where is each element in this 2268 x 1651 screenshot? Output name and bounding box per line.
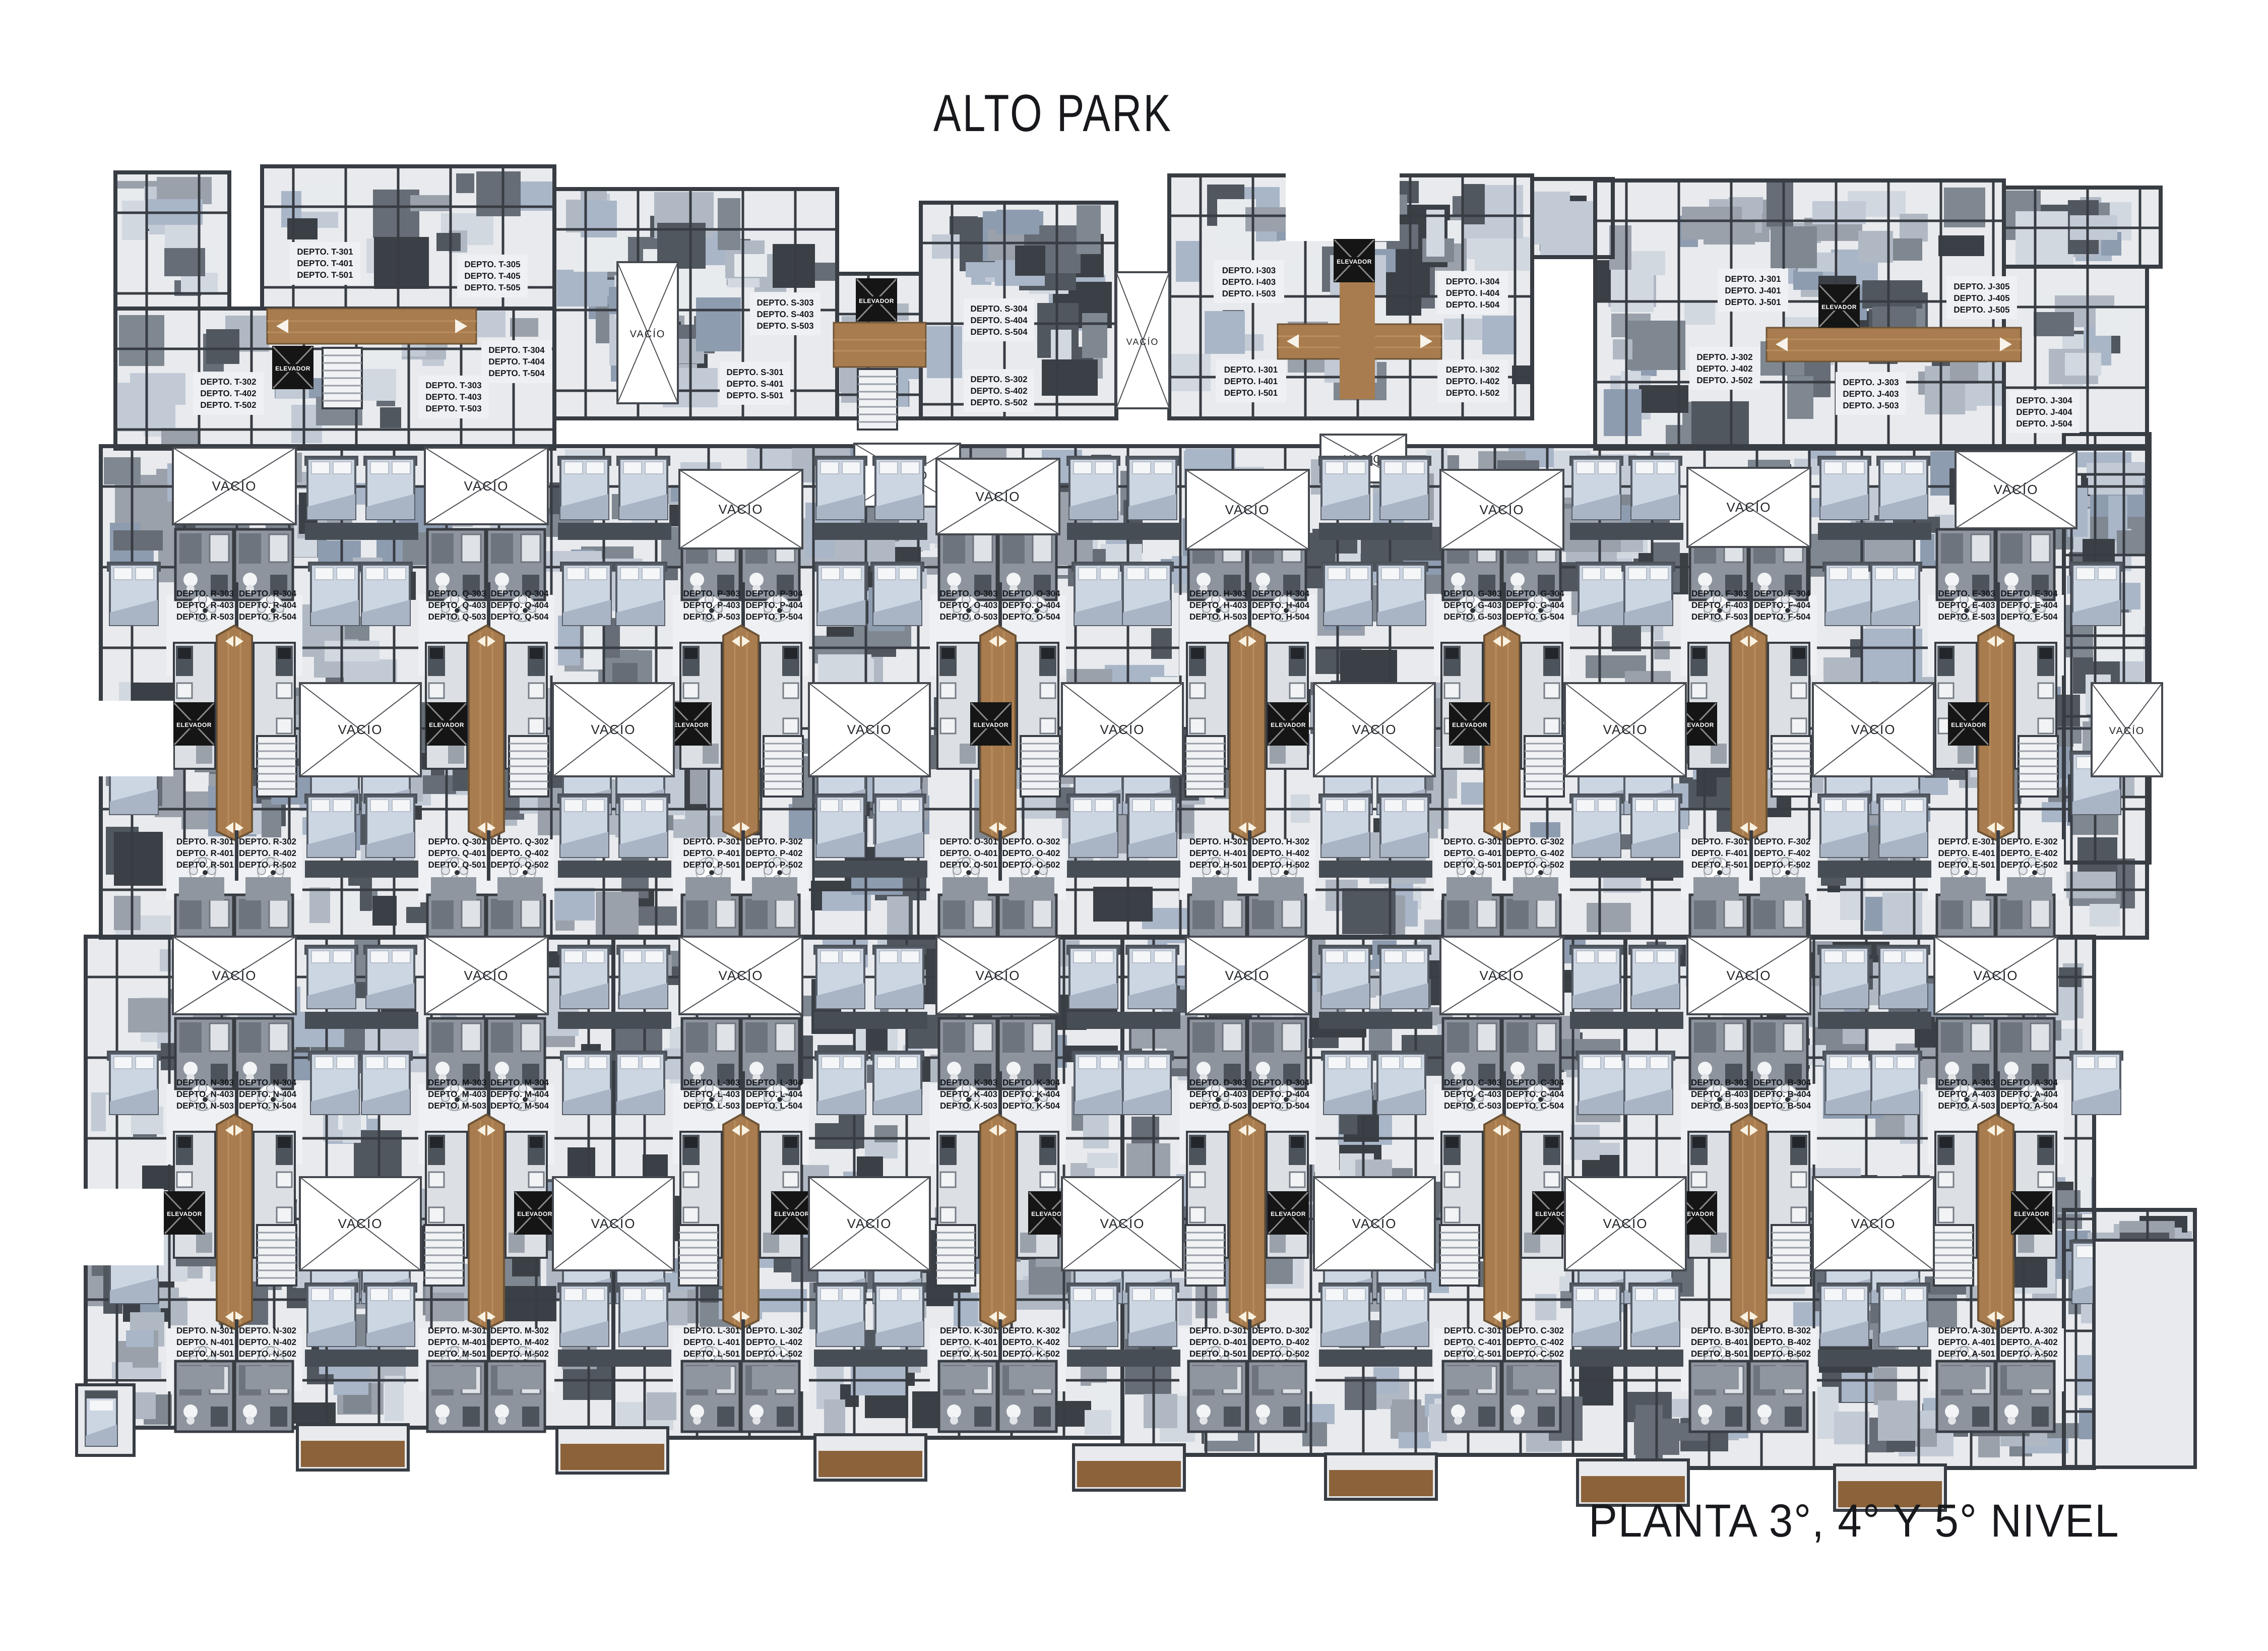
svg-text:VACÍO: VACÍO [1974,968,2019,983]
svg-text:VACÍO: VACÍO [2109,725,2145,737]
svg-text:VACÍO: VACÍO [976,489,1021,504]
svg-text:DEPTO. F-303DEPTO. F-403DEPTO.: DEPTO. F-303DEPTO. F-403DEPTO. F-503 [1691,589,1748,622]
svg-text:VACÍO: VACÍO [1727,500,1772,515]
svg-text:DEPTO. E-304DEPTO. E-404DEPTO.: DEPTO. E-304DEPTO. E-404DEPTO. E-504 [2000,589,2058,622]
svg-text:DEPTO. J-301DEPTO. J-401DEPTO.: DEPTO. J-301DEPTO. J-401DEPTO. J-501 [1725,274,1781,307]
svg-text:DEPTO. B-302DEPTO. B-402DEPTO.: DEPTO. B-302DEPTO. B-402DEPTO. B-502 [1753,1326,1811,1359]
svg-text:DEPTO. G-302DEPTO. G-402DEPTO.: DEPTO. G-302DEPTO. G-402DEPTO. G-502 [1506,837,1564,870]
svg-text:VACÍO: VACÍO [1603,722,1648,737]
svg-text:DEPTO. B-304DEPTO. B-404DEPTO.: DEPTO. B-304DEPTO. B-404DEPTO. B-504 [1753,1078,1811,1111]
svg-text:DEPTO. D-303DEPTO. D-403DEPTO.: DEPTO. D-303DEPTO. D-403DEPTO. D-503 [1189,1078,1247,1111]
svg-text:VACÍO: VACÍO [1126,337,1159,347]
svg-text:DEPTO. K-301DEPTO. K-401DEPTO.: DEPTO. K-301DEPTO. K-401DEPTO. K-501 [940,1326,997,1359]
svg-text:DEPTO. T-305DEPTO. T-405DEPTO.: DEPTO. T-305DEPTO. T-405DEPTO. T-505 [464,260,520,292]
svg-text:DEPTO. A-302DEPTO. A-402DEPTO.: DEPTO. A-302DEPTO. A-402DEPTO. A-502 [2000,1326,2057,1359]
svg-text:DEPTO. J-303DEPTO. J-403DEPTO.: DEPTO. J-303DEPTO. J-403DEPTO. J-503 [1843,378,1899,410]
svg-text:VACÍO: VACÍO [630,328,666,340]
svg-text:DEPTO. R-301DEPTO. R-401DEPTO.: DEPTO. R-301DEPTO. R-401DEPTO. R-501 [176,837,234,870]
svg-text:VACÍO: VACÍO [464,968,509,983]
svg-text:DEPTO. C-304DEPTO. C-404DEPTO.: DEPTO. C-304DEPTO. C-404DEPTO. C-504 [1506,1078,1564,1111]
svg-text:DEPTO. K-303DEPTO. K-403DEPTO.: DEPTO. K-303DEPTO. K-403DEPTO. K-503 [940,1078,997,1111]
svg-text:VACÍO: VACÍO [1994,482,2039,497]
svg-text:PLANTA 3°, 4° Y 5° NIVEL: PLANTA 3°, 4° Y 5° NIVEL [1589,1495,2119,1547]
svg-text:DEPTO. E-303DEPTO. E-403DEPTO.: DEPTO. E-303DEPTO. E-403DEPTO. E-503 [1938,589,1995,622]
svg-text:DEPTO. M-304DEPTO. M-404DEPTO.: DEPTO. M-304DEPTO. M-404DEPTO. M-504 [490,1078,549,1111]
svg-text:VACÍO: VACÍO [212,968,257,983]
svg-text:DEPTO. T-301DEPTO. T-401DEPTO.: DEPTO. T-301DEPTO. T-401DEPTO. T-501 [297,247,353,280]
svg-text:DEPTO. H-303DEPTO. H-403DEPTO.: DEPTO. H-303DEPTO. H-403DEPTO. H-503 [1189,589,1247,622]
svg-text:DEPTO. H-302DEPTO. H-402DEPTO.: DEPTO. H-302DEPTO. H-402DEPTO. H-502 [1252,837,1309,870]
svg-text:DEPTO. O-304DEPTO. O-404DEPTO.: DEPTO. O-304DEPTO. O-404DEPTO. O-504 [1002,589,1060,622]
svg-text:VACÍO: VACÍO [1100,722,1145,737]
svg-text:DEPTO. P-301DEPTO. P-401DEPTO.: DEPTO. P-301DEPTO. P-401DEPTO. P-501 [683,837,740,870]
svg-text:DEPTO. C-301DEPTO. C-401DEPTO.: DEPTO. C-301DEPTO. C-401DEPTO. C-501 [1444,1326,1501,1359]
svg-text:DEPTO. D-301DEPTO. D-401DEPTO.: DEPTO. D-301DEPTO. D-401DEPTO. D-501 [1189,1326,1247,1359]
svg-text:DEPTO. C-303DEPTO. C-403DEPTO.: DEPTO. C-303DEPTO. C-403DEPTO. C-503 [1444,1078,1501,1111]
svg-text:DEPTO. L-304DEPTO. L-404DEPTO.: DEPTO. L-304DEPTO. L-404DEPTO. L-504 [746,1078,803,1111]
svg-text:VACÍO: VACÍO [591,722,636,737]
svg-text:DEPTO. P-303DEPTO. P-403DEPTO.: DEPTO. P-303DEPTO. P-403DEPTO. P-503 [683,589,740,622]
svg-text:VACÍO: VACÍO [464,478,509,494]
svg-text:VACÍO: VACÍO [338,722,383,737]
svg-text:VACÍO: VACÍO [1480,502,1525,517]
svg-text:VACÍO: VACÍO [1352,1216,1397,1231]
svg-text:VACÍO: VACÍO [719,968,764,983]
svg-text:DEPTO. O-303DEPTO. O-403DEPTO.: DEPTO. O-303DEPTO. O-403DEPTO. O-503 [940,589,998,622]
svg-text:VACÍO: VACÍO [1851,722,1896,737]
svg-text:VACÍO: VACÍO [1225,502,1270,517]
svg-text:DEPTO. I-302DEPTO. I-402DEPTO.: DEPTO. I-302DEPTO. I-402DEPTO. I-502 [1446,365,1499,398]
svg-text:DEPTO. S-304DEPTO. S-404DEPTO.: DEPTO. S-304DEPTO. S-404DEPTO. S-504 [970,304,1028,337]
svg-text:VACÍO: VACÍO [1100,1216,1145,1231]
svg-text:DEPTO. S-303DEPTO. S-403DEPTO.: DEPTO. S-303DEPTO. S-403DEPTO. S-503 [757,298,813,331]
svg-text:DEPTO. E-301DEPTO. E-401DEPTO.: DEPTO. E-301DEPTO. E-401DEPTO. E-501 [1938,837,1995,870]
svg-text:DEPTO. M-303DEPTO. M-403DEPTO.: DEPTO. M-303DEPTO. M-403DEPTO. M-503 [428,1078,486,1111]
svg-text:DEPTO. T-302DEPTO. T-402DEPTO.: DEPTO. T-302DEPTO. T-402DEPTO. T-502 [200,377,256,410]
svg-text:VACÍO: VACÍO [591,1216,636,1231]
svg-text:VACÍO: VACÍO [1727,968,1772,983]
svg-text:DEPTO. P-302DEPTO. P-402DEPTO.: DEPTO. P-302DEPTO. P-402DEPTO. P-502 [745,837,802,870]
svg-text:DEPTO. I-301DEPTO. I-401DEPTO.: DEPTO. I-301DEPTO. I-401DEPTO. I-501 [1224,365,1278,398]
svg-text:DEPTO. J-302DEPTO. J-402DEPTO.: DEPTO. J-302DEPTO. J-402DEPTO. J-502 [1696,352,1752,385]
svg-text:DEPTO. F-301DEPTO. F-401DEPTO.: DEPTO. F-301DEPTO. F-401DEPTO. F-501 [1691,837,1748,870]
svg-text:DEPTO. N-304DEPTO. N-404DEPTO.: DEPTO. N-304DEPTO. N-404DEPTO. N-504 [239,1078,297,1111]
svg-text:DEPTO. G-304DEPTO. G-404DEPTO.: DEPTO. G-304DEPTO. G-404DEPTO. G-504 [1506,589,1564,622]
svg-text:DEPTO. K-302DEPTO. K-402DEPTO.: DEPTO. K-302DEPTO. K-402DEPTO. K-502 [1002,1326,1060,1359]
svg-text:DEPTO. M-302DEPTO. M-402DEPTO.: DEPTO. M-302DEPTO. M-402DEPTO. M-502 [490,1326,549,1359]
svg-text:VACÍO: VACÍO [1352,722,1397,737]
svg-text:DEPTO. L-301DEPTO. L-401DEPTO.: DEPTO. L-301DEPTO. L-401DEPTO. L-501 [683,1326,740,1359]
svg-text:DEPTO. G-301DEPTO. G-401DEPTO.: DEPTO. G-301DEPTO. G-401DEPTO. G-501 [1444,837,1502,870]
svg-text:DEPTO. R-303DEPTO. R-403DEPTO.: DEPTO. R-303DEPTO. R-403DEPTO. R-503 [176,589,234,622]
svg-text:DEPTO. N-302DEPTO. N-402DEPTO.: DEPTO. N-302DEPTO. N-402DEPTO. N-502 [239,1326,296,1359]
svg-text:DEPTO. F-304DEPTO. F-404DEPTO.: DEPTO. F-304DEPTO. F-404DEPTO. F-504 [1754,589,1811,622]
svg-text:DEPTO. E-302DEPTO. E-402DEPTO.: DEPTO. E-302DEPTO. E-402DEPTO. E-502 [2000,837,2057,870]
svg-text:DEPTO. O-302DEPTO. O-402DEPTO.: DEPTO. O-302DEPTO. O-402DEPTO. O-502 [1002,837,1060,870]
svg-text:DEPTO. D-304DEPTO. D-404DEPTO.: DEPTO. D-304DEPTO. D-404DEPTO. D-504 [1252,1078,1310,1111]
svg-text:DEPTO. I-304DEPTO. I-404DEPTO.: DEPTO. I-304DEPTO. I-404DEPTO. I-504 [1446,277,1500,310]
svg-text:VACÍO: VACÍO [212,478,257,494]
svg-text:VACÍO: VACÍO [1480,968,1525,983]
svg-text:DEPTO. K-304DEPTO. K-404DEPTO.: DEPTO. K-304DEPTO. K-404DEPTO. K-504 [1002,1078,1060,1111]
svg-text:DEPTO. T-303DEPTO. T-403DEPTO.: DEPTO. T-303DEPTO. T-403DEPTO. T-503 [425,381,481,413]
svg-text:DEPTO. L-302DEPTO. L-402DEPTO.: DEPTO. L-302DEPTO. L-402DEPTO. L-502 [746,1326,802,1359]
svg-text:DEPTO. C-302DEPTO. C-402DEPTO.: DEPTO. C-302DEPTO. C-402DEPTO. C-502 [1506,1326,1564,1359]
svg-text:DEPTO. J-304DEPTO. J-404DEPTO.: DEPTO. J-304DEPTO. J-404DEPTO. J-504 [2016,396,2072,429]
svg-text:DEPTO. H-301DEPTO. H-401DEPTO.: DEPTO. H-301DEPTO. H-401DEPTO. H-501 [1189,837,1247,870]
svg-text:DEPTO. O-301DEPTO. O-401DEPTO.: DEPTO. O-301DEPTO. O-401DEPTO. O-501 [940,837,998,870]
svg-text:VACÍO: VACÍO [719,502,764,517]
svg-text:DEPTO. N-301DEPTO. N-401DEPTO.: DEPTO. N-301DEPTO. N-401DEPTO. N-501 [176,1326,234,1359]
svg-text:DEPTO. Q-303DEPTO. Q-403DEPTO.: DEPTO. Q-303DEPTO. Q-403DEPTO. Q-503 [428,589,486,622]
svg-text:DEPTO. F-302DEPTO. F-402DEPTO.: DEPTO. F-302DEPTO. F-402DEPTO. F-502 [1754,837,1810,870]
svg-text:DEPTO. J-305DEPTO. J-405DEPTO.: DEPTO. J-305DEPTO. J-405DEPTO. J-505 [1954,282,2009,315]
svg-text:DEPTO. I-303DEPTO. I-403DEPTO.: DEPTO. I-303DEPTO. I-403DEPTO. I-503 [1222,266,1276,298]
svg-text:DEPTO. Q-302DEPTO. Q-402DEPTO.: DEPTO. Q-302DEPTO. Q-402DEPTO. Q-502 [491,837,549,870]
svg-text:DEPTO. Q-304DEPTO. Q-404DEPTO.: DEPTO. Q-304DEPTO. Q-404DEPTO. Q-504 [491,589,549,622]
svg-text:DEPTO. L-303DEPTO. L-403DEPTO.: DEPTO. L-303DEPTO. L-403DEPTO. L-503 [683,1078,740,1111]
svg-text:DEPTO. A-304DEPTO. A-404DEPTO.: DEPTO. A-304DEPTO. A-404DEPTO. A-504 [2000,1078,2058,1111]
svg-text:DEPTO. N-303DEPTO. N-403DEPTO.: DEPTO. N-303DEPTO. N-403DEPTO. N-503 [176,1078,234,1111]
svg-text:DEPTO. H-304DEPTO. H-404DEPTO.: DEPTO. H-304DEPTO. H-404DEPTO. H-504 [1252,589,1310,622]
svg-text:DEPTO. A-303DEPTO. A-403DEPTO.: DEPTO. A-303DEPTO. A-403DEPTO. A-503 [1938,1078,1995,1111]
svg-text:DEPTO. B-303DEPTO. B-403DEPTO.: DEPTO. B-303DEPTO. B-403DEPTO. B-503 [1691,1078,1748,1111]
svg-text:VACÍO: VACÍO [976,968,1021,983]
svg-text:DEPTO. S-302DEPTO. S-402DEPTO.: DEPTO. S-302DEPTO. S-402DEPTO. S-502 [970,375,1027,407]
svg-text:DEPTO. A-301DEPTO. A-401DEPTO.: DEPTO. A-301DEPTO. A-401DEPTO. A-501 [1938,1326,1995,1359]
svg-text:DEPTO. T-304DEPTO. T-404DEPTO.: DEPTO. T-304DEPTO. T-404DEPTO. T-504 [488,345,545,378]
svg-text:VACÍO: VACÍO [1603,1216,1648,1231]
svg-text:DEPTO. R-304DEPTO. R-404DEPTO.: DEPTO. R-304DEPTO. R-404DEPTO. R-504 [239,589,297,622]
svg-text:DEPTO. R-302DEPTO. R-402DEPTO.: DEPTO. R-302DEPTO. R-402DEPTO. R-502 [239,837,296,870]
svg-text:DEPTO. S-301DEPTO. S-401DEPTO.: DEPTO. S-301DEPTO. S-401DEPTO. S-501 [726,368,783,400]
svg-text:VACÍO: VACÍO [1851,1216,1896,1231]
svg-text:DEPTO. D-302DEPTO. D-402DEPTO.: DEPTO. D-302DEPTO. D-402DEPTO. D-502 [1252,1326,1309,1359]
svg-text:VACÍO: VACÍO [847,1216,892,1231]
svg-text:ALTO PARK: ALTO PARK [933,84,1172,143]
svg-text:DEPTO. Q-301DEPTO. Q-401DEPTO.: DEPTO. Q-301DEPTO. Q-401DEPTO. Q-501 [428,837,486,870]
svg-text:DEPTO. G-303DEPTO. G-403DEPTO.: DEPTO. G-303DEPTO. G-403DEPTO. G-503 [1444,589,1502,622]
svg-text:VACÍO: VACÍO [338,1216,383,1231]
svg-text:DEPTO. M-301DEPTO. M-401DEPTO.: DEPTO. M-301DEPTO. M-401DEPTO. M-501 [428,1326,486,1359]
svg-text:DEPTO. B-301DEPTO. B-401DEPTO.: DEPTO. B-301DEPTO. B-401DEPTO. B-501 [1691,1326,1748,1359]
svg-text:VACÍO: VACÍO [847,722,892,737]
svg-text:DEPTO. P-304DEPTO. P-404DEPTO.: DEPTO. P-304DEPTO. P-404DEPTO. P-504 [745,589,803,622]
svg-text:VACÍO: VACÍO [1225,968,1270,983]
